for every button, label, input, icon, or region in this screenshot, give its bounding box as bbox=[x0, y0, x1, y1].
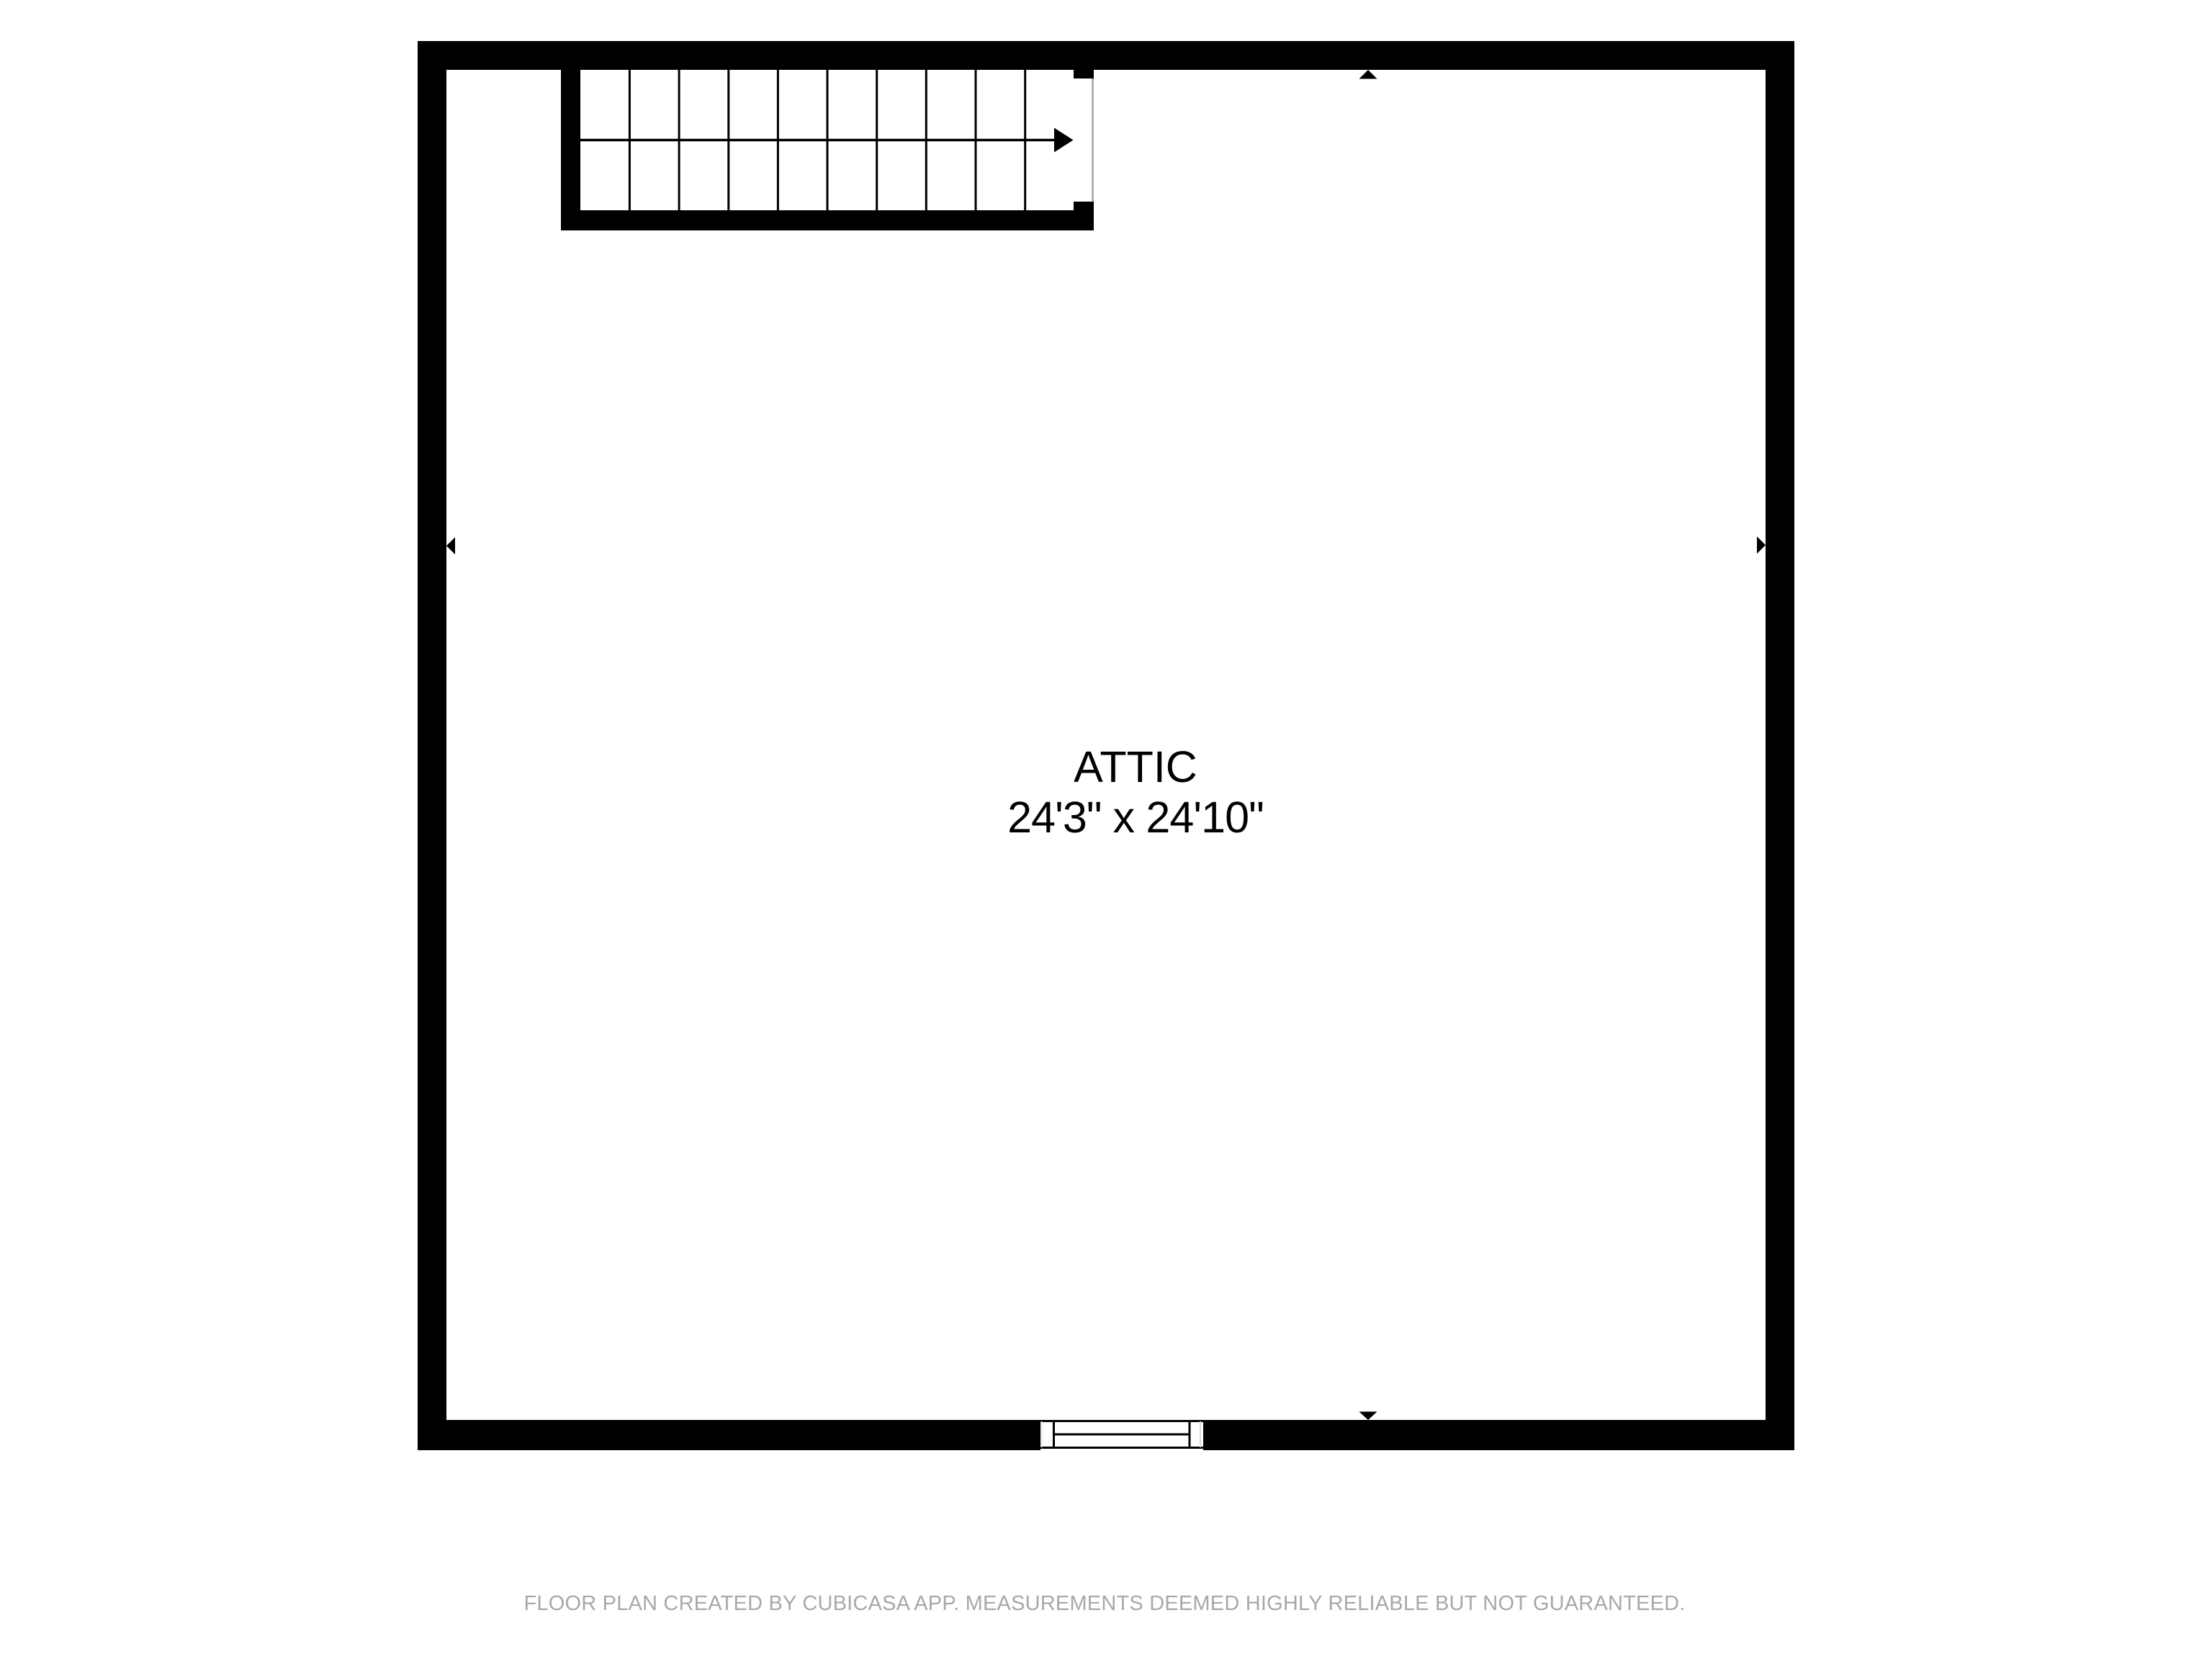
svg-text:FLOOR PLAN CREATED BY CUBICASA: FLOOR PLAN CREATED BY CUBICASA APP. MEAS… bbox=[523, 1592, 1685, 1615]
svg-text:ATTIC: ATTIC bbox=[1074, 742, 1197, 791]
svg-text:24'3" x 24'10": 24'3" x 24'10" bbox=[1007, 793, 1264, 842]
